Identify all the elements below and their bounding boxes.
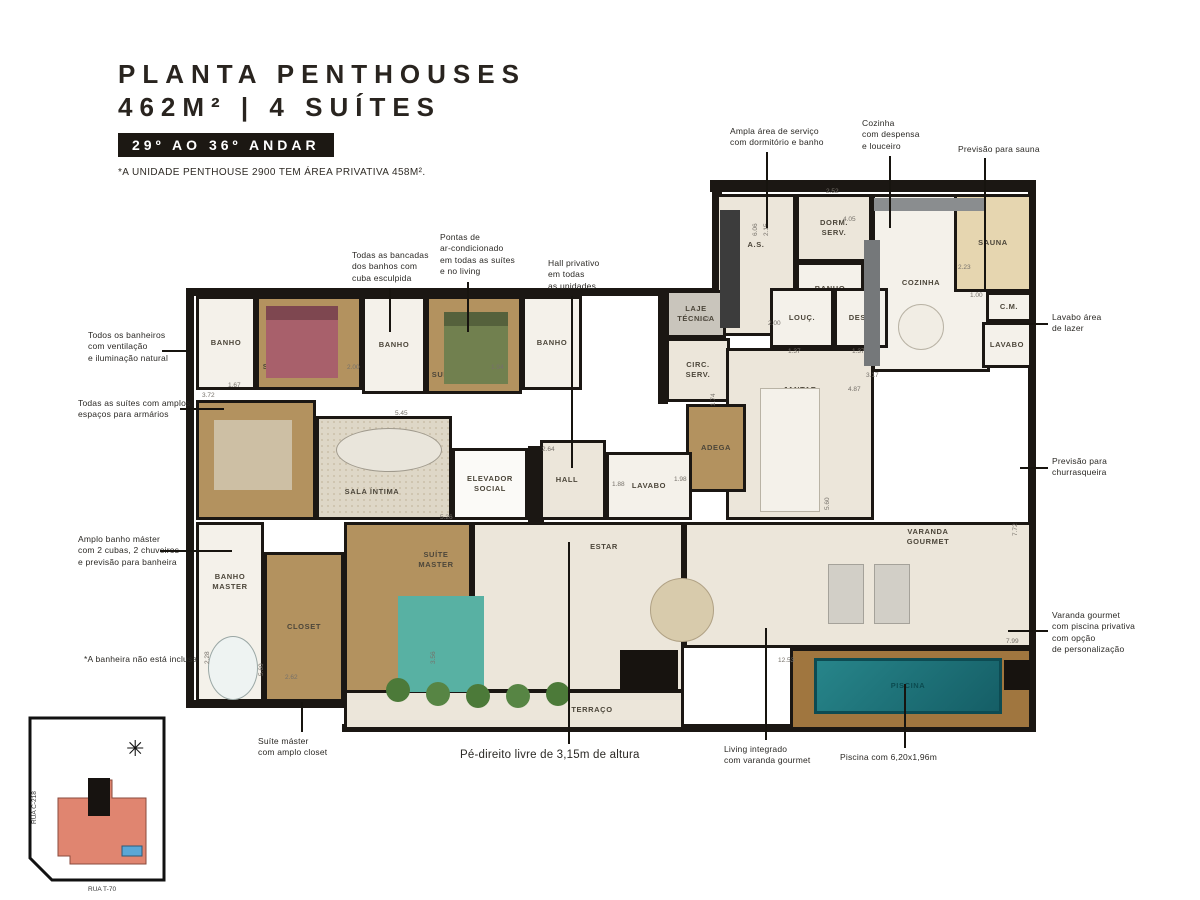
- callout-line-previsao-sauna: [984, 158, 986, 292]
- headboard-suite-2: [266, 306, 338, 320]
- dimension-label: 5.45: [395, 410, 408, 417]
- room-label-terraco: TERRAÇO: [571, 705, 612, 715]
- room-label-suite-master: SUÍTE MASTER: [418, 550, 453, 570]
- dimension-label: 1.62: [697, 316, 710, 323]
- callout-line-varanda-piscina-privativa: [1008, 630, 1048, 632]
- wall-segment: [710, 180, 1036, 192]
- keyplan-street-bottom: RUA T-70: [88, 886, 116, 893]
- room-label-piscina: PISCINA: [891, 681, 926, 691]
- dimension-label: 2.52: [826, 188, 839, 195]
- dimension-label: 3.56: [430, 651, 437, 664]
- callout-line-lavabo-lazer-nota: [1020, 323, 1048, 325]
- room-label-estar: ESTAR: [590, 542, 618, 552]
- callout-varanda-piscina-privativa: Varanda gourmet com piscina privativa co…: [1052, 610, 1135, 656]
- callout-previsao-sauna: Previsão para sauna: [958, 144, 1040, 155]
- room-label-cm: C.M.: [1000, 302, 1018, 312]
- dimension-label: 1.37: [852, 348, 865, 355]
- dimension-label: 3.17: [866, 372, 879, 379]
- dimension-label: 1.00: [970, 292, 983, 299]
- bathtub: [208, 636, 258, 700]
- room-label-banho-suite-1: BANHO: [211, 338, 242, 348]
- dimension-label: 4.87: [848, 386, 861, 393]
- room-label-adega: ADEGA: [701, 443, 731, 453]
- callout-suites-armarios: Todas as suítes com amplos espaços para …: [78, 398, 190, 421]
- dimension-label: 7.72: [1012, 523, 1019, 536]
- callout-area-servico: Ampla área de serviço com dormitório e b…: [730, 126, 824, 149]
- as-cabinet: [720, 210, 740, 328]
- dimension-label: 1.74: [710, 393, 717, 406]
- callout-line-pe-direito: [568, 542, 570, 744]
- callout-ar-condicionado: Pontas de ar-condicionado em todas as su…: [440, 232, 515, 278]
- dimension-label: 7.99: [1006, 638, 1019, 645]
- dimension-label: 4.05: [843, 216, 856, 223]
- callout-cozinha-despensa: Cozinha com despensa e louceiro: [862, 118, 920, 152]
- callout-line-ar-condicionado: [467, 282, 469, 332]
- room-label-varanda-gourmet: VARANDA GOURMET: [907, 527, 950, 547]
- keyplan: ✳ RUA C-218 RUA T-70: [22, 712, 172, 897]
- callout-line-banheiros-ventilacao: [162, 350, 190, 352]
- dimension-label: 1.88: [612, 481, 625, 488]
- dining-table: [760, 388, 820, 512]
- callout-line-previsao-churrasqueira: [1020, 467, 1048, 469]
- callout-previsao-churrasqueira: Previsão para churrasqueira: [1052, 456, 1107, 479]
- room-dorm-serv: DORM. SERV.: [796, 194, 872, 262]
- kitchen-table: [898, 304, 944, 350]
- callout-line-bancadas-cuba: [389, 288, 391, 332]
- callout-line-suite-master-closet: [301, 702, 303, 732]
- callout-line-area-servico: [766, 152, 768, 228]
- callout-piscina-dimensoes: Piscina com 6,20x1,96m: [840, 752, 937, 763]
- room-label-cozinha: COZINHA: [902, 278, 940, 288]
- room-cm: C.M.: [986, 292, 1032, 322]
- room-label-banho-master: BANHO MASTER: [212, 572, 247, 592]
- dimension-label: 5.60: [258, 663, 265, 676]
- room-label-louc: LOUÇ.: [789, 313, 815, 323]
- wall-segment: [186, 288, 716, 296]
- dimension-label: 6.06: [752, 223, 759, 236]
- dimension-label: 2.00: [768, 320, 781, 327]
- room-louc: LOUÇ.: [770, 288, 834, 348]
- callout-bancadas-cuba: Todas as bancadas dos banhos com cuba es…: [352, 250, 429, 284]
- dimension-label: 1.98: [674, 476, 687, 483]
- room-label-sala-intima: SALA ÍNTIMA: [345, 487, 400, 497]
- headboard-suite-3: [444, 312, 508, 326]
- room-label-circ-serv: CIRC. SERV.: [686, 360, 711, 380]
- room-label-lavabo-lazer: LAVABO: [990, 340, 1024, 350]
- callout-line-piscina-dimensoes: [904, 684, 906, 748]
- plant-2: [426, 682, 450, 706]
- floor-plan: A.S.DORM. SERV.BANHOCOZINHASAUNAC.M.LAVA…: [0, 0, 1200, 900]
- compass-icon: ✳: [126, 736, 144, 761]
- callout-pe-direito: Pé-direito livre de 3,15m de altura: [460, 748, 640, 764]
- room-label-banho-suite-3: BANHO: [537, 338, 568, 348]
- callout-banheira-nota: *A banheira não está inclusa: [84, 654, 197, 665]
- plant-5: [546, 682, 570, 706]
- room-banho-suite-3: BANHO: [522, 296, 582, 390]
- bed-master: [398, 596, 484, 692]
- callout-line-suites-armarios: [180, 408, 224, 410]
- dimension-label: 5.26: [440, 514, 453, 521]
- callout-living-integrado: Living integrado com varanda gourmet: [724, 744, 810, 767]
- room-label-sauna: SAUNA: [978, 238, 1008, 248]
- room-label-closet: CLOSET: [287, 622, 321, 632]
- dimension-label: 5.60: [824, 497, 831, 510]
- room-label-banho-suite-2: BANHO: [379, 340, 410, 350]
- dimension-label: 2.00: [347, 364, 360, 371]
- kitchen-counter: [864, 240, 880, 366]
- dimension-label: 2.62: [285, 674, 298, 681]
- planter-box: [620, 650, 678, 690]
- room-closet: CLOSET: [264, 552, 344, 702]
- lounger-1: [828, 564, 864, 624]
- callout-hall-privativo: Hall privativo em todas as unidades: [548, 258, 599, 292]
- dimension-label: 1.94: [491, 364, 504, 371]
- room-lavabo-lazer: LAVABO: [982, 322, 1032, 368]
- room-adega: ADEGA: [686, 404, 746, 492]
- room-label-lavabo: LAVABO: [632, 481, 666, 491]
- pool-bench: [1004, 660, 1030, 690]
- room-label-hall: HALL: [556, 475, 578, 485]
- room-label-elevador-social: ELEVADOR SOCIAL: [467, 474, 513, 494]
- room-piscina: PISCINA: [814, 658, 1002, 714]
- callout-lavabo-lazer-nota: Lavabo área de lazer: [1052, 312, 1101, 335]
- dimension-label: 3.72: [202, 392, 215, 399]
- room-label-as: A.S.: [748, 240, 765, 250]
- keyplan-street-left: RUA C-218: [31, 791, 38, 824]
- dimension-label: 2.23: [958, 264, 971, 271]
- room-elevador-social: ELEVADOR SOCIAL: [452, 448, 528, 520]
- dimension-label: 12.53: [778, 657, 794, 664]
- bed-suite-1: [214, 420, 292, 490]
- callout-line-cozinha-despensa: [889, 156, 891, 228]
- callout-banheiros-ventilacao: Todos os banheiros com ventilação e ilum…: [88, 330, 168, 364]
- dimension-label: 2.64: [542, 446, 555, 453]
- plant-1: [386, 678, 410, 702]
- callout-line-banho-master-detalhes: [160, 550, 232, 552]
- dimension-label: 1.37: [788, 348, 801, 355]
- plant-4: [506, 684, 530, 708]
- dimension-label: 2.28: [204, 651, 211, 664]
- callout-line-hall-privativo: [571, 296, 573, 468]
- dimension-label: 1.67: [228, 382, 241, 389]
- room-laje-tecnica: LAJE TÉCNICA: [666, 290, 726, 338]
- room-circ-serv: CIRC. SERV.: [666, 338, 730, 402]
- plant-3: [466, 684, 490, 708]
- keyplan-core: [88, 778, 110, 816]
- room-banho-suite-1: BANHO: [196, 296, 256, 390]
- callout-line-living-integrado: [765, 628, 767, 740]
- estar-table: [650, 578, 714, 642]
- lounger-2: [874, 564, 910, 624]
- room-banho-suite-2: BANHO: [362, 296, 426, 394]
- sofa-sala-intima: [336, 428, 442, 472]
- keyplan-pool-marker: [122, 846, 142, 856]
- callout-suite-master-closet: Suíte máster com amplo closet: [258, 736, 327, 759]
